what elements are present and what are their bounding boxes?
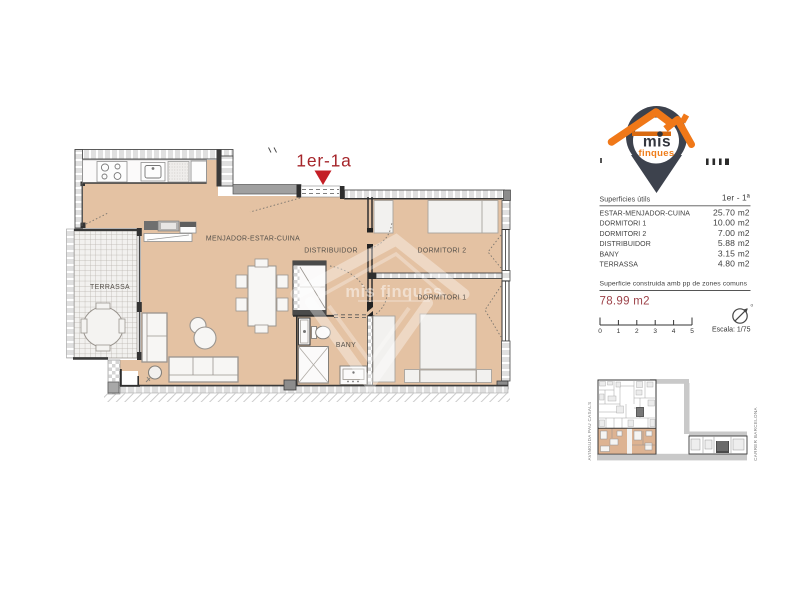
svg-text:m2: m2 (738, 229, 750, 238)
svg-text:m2: m2 (738, 260, 750, 269)
svg-text:1: 1 (617, 328, 621, 335)
svg-text:m2: m2 (738, 209, 750, 218)
svg-text:4: 4 (672, 328, 676, 335)
svg-text:25.70: 25.70 (713, 208, 735, 218)
svg-text:m2: m2 (738, 219, 750, 228)
svg-text:ESTAR-MENJADOR-CUINA: ESTAR-MENJADOR-CUINA (600, 211, 691, 218)
svg-text:5.88: 5.88 (718, 238, 735, 248)
svg-text:DISTRIBUIDOR: DISTRIBUIDOR (304, 248, 358, 255)
svg-text:1er-1a: 1er-1a (296, 151, 351, 171)
svg-text:DISTRIBUIDOR: DISTRIBUIDOR (600, 241, 651, 248)
svg-text:MENJADOR-ESTAR-CUINA: MENJADOR-ESTAR-CUINA (206, 236, 300, 243)
svg-text:TERRASSA: TERRASSA (90, 284, 130, 291)
svg-text:BANY: BANY (600, 251, 620, 258)
svg-text:3.15: 3.15 (718, 248, 735, 258)
svg-text:DORMITORI 1: DORMITORI 1 (418, 295, 467, 302)
svg-text:0: 0 (598, 328, 602, 335)
svg-text:Escala: 1/75: Escala: 1/75 (712, 327, 751, 334)
svg-text:3: 3 (653, 328, 657, 335)
svg-text:5: 5 (690, 328, 694, 335)
svg-text:m2: m2 (738, 249, 750, 258)
svg-text:Superficies útils: Superficies útils (600, 197, 651, 204)
svg-text:4.80: 4.80 (718, 259, 735, 269)
svg-text:DORMITORI 2: DORMITORI 2 (418, 248, 467, 255)
svg-text:DORMITORI 1: DORMITORI 1 (600, 221, 647, 228)
svg-text:AVINGUDA PAU CASALS: AVINGUDA PAU CASALS (587, 402, 592, 461)
svg-text:CARRER BARCELONA: CARRER BARCELONA (753, 406, 758, 460)
svg-text:TERRASSA: TERRASSA (600, 262, 639, 269)
svg-text:finques: finques (639, 148, 675, 159)
svg-text:Superficie construida amb pp d: Superficie construida amb pp de zones co… (600, 281, 748, 288)
svg-text:m2: m2 (738, 239, 750, 248)
svg-text:BANY: BANY (336, 342, 356, 349)
svg-text:DORMITORI 2: DORMITORI 2 (600, 231, 647, 238)
svg-text:1er - 1ª: 1er - 1ª (722, 193, 751, 203)
svg-text:2: 2 (635, 328, 639, 335)
svg-text:7.00: 7.00 (718, 228, 735, 238)
svg-text:10.00: 10.00 (713, 218, 735, 228)
svg-text:78.99 m2: 78.99 m2 (600, 296, 650, 308)
